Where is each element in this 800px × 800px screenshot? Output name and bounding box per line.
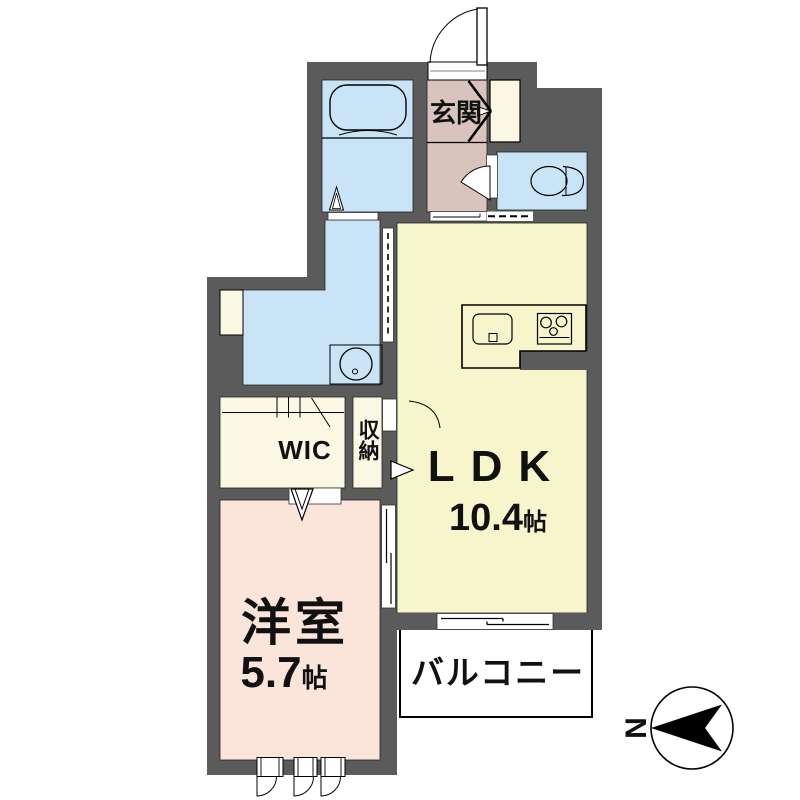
label-entrance: 玄関	[430, 98, 482, 128]
dashed-opening	[487, 212, 533, 222]
entrance-door	[428, 8, 487, 80]
western-sliding-door	[382, 505, 396, 608]
kitchen-back-wall	[520, 351, 602, 370]
bedroom-windows	[257, 758, 345, 797]
shoe-cabinet	[490, 80, 520, 142]
casement-window	[257, 758, 283, 797]
label-balcony: バルコニー	[411, 654, 585, 691]
bathroom-door-opening	[328, 213, 378, 221]
label-storage: 収納	[356, 419, 380, 462]
room-ldk	[397, 223, 587, 613]
label-ldk: LDK	[428, 442, 566, 491]
label-western-room: 洋室	[241, 595, 349, 651]
wall-niche	[220, 290, 243, 335]
room-toilet	[497, 152, 587, 210]
floor-plan-svg: 玄関 LDK 10.4帖 洋室 5.7帖 WIC 収納 バルコニー N	[0, 0, 800, 800]
casement-window	[321, 758, 345, 797]
label-wic: WIC	[278, 435, 332, 465]
balcony-sliding-window	[437, 614, 553, 630]
compass-north-label: N	[620, 717, 653, 739]
casement-window	[294, 758, 317, 797]
washroom-sliding-door	[383, 228, 394, 342]
hall-ldk-opening	[430, 212, 487, 222]
compass: N	[620, 687, 733, 769]
